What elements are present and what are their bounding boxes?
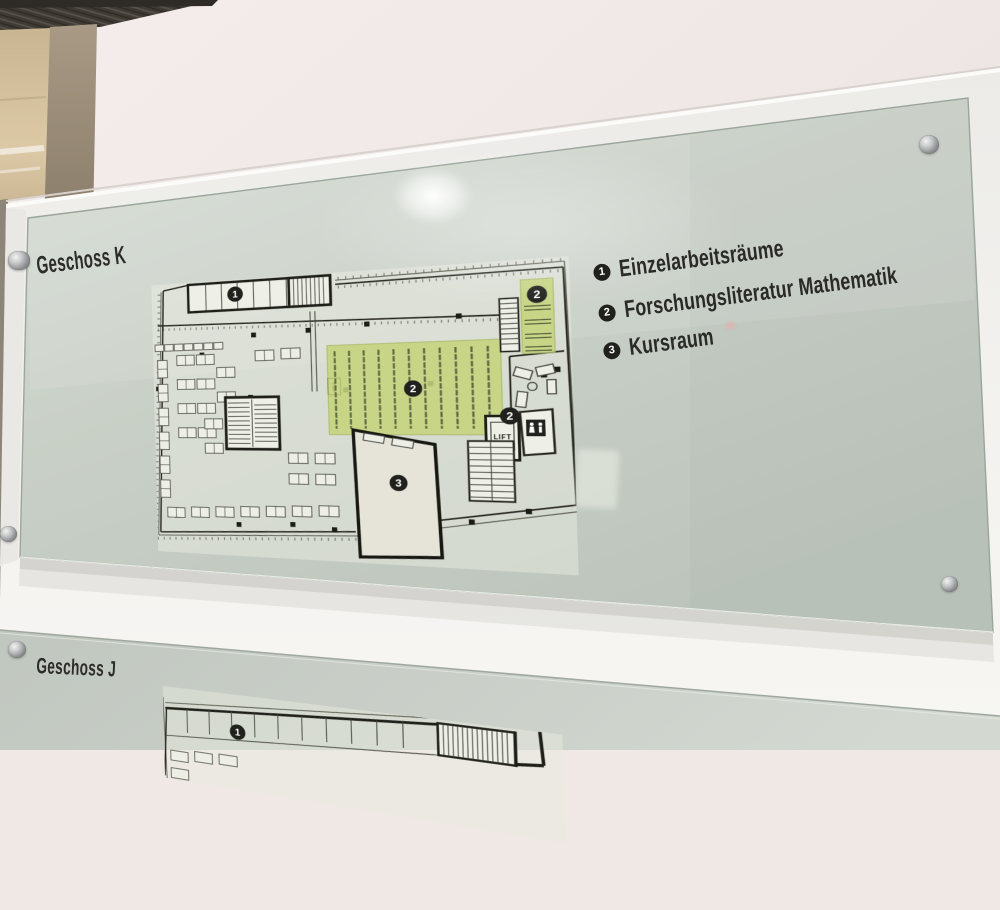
legend-badge-2: 2 [598, 303, 617, 322]
standoff-screw-icon [919, 135, 939, 154]
course-room [353, 430, 442, 562]
standoff-screw-icon [8, 251, 30, 270]
wc-room [520, 409, 555, 455]
legend-label-3: Kursraum [628, 325, 715, 359]
floor-title-j: Geschoss J [36, 653, 166, 685]
badge-1-label: 1 [235, 727, 241, 738]
badge-2-label: 2 [410, 383, 417, 394]
stairs-side [499, 298, 519, 352]
standoff-screw-icon [8, 641, 26, 658]
wc-icon [526, 420, 546, 437]
badge-1-label: 1 [232, 289, 238, 300]
wall-photo-scene: LIFT 1 2 2 [0, 0, 1000, 750]
badge-2b-label: 2 [533, 289, 541, 301]
legend-item-3: 3 Kursraum [602, 322, 745, 363]
perspective-layer: LIFT 1 2 2 [0, 0, 964, 910]
faint-reflection [575, 449, 620, 509]
floor-plan-j: 1 [163, 686, 566, 844]
legend-badge-3: 3 [602, 341, 621, 360]
badge-2c-label: 2 [506, 410, 514, 422]
floor-plan-k: LIFT 1 2 2 [151, 256, 578, 575]
floor-title-j-text: Geschoss J [36, 653, 117, 682]
stairs-top [288, 275, 330, 307]
stairs-lower [468, 441, 515, 502]
standoff-screw-icon [941, 576, 958, 592]
single-rooms-block [188, 275, 331, 312]
legend-badge-1: 1 [592, 262, 611, 281]
badge-3-label: 3 [395, 478, 402, 489]
standoff-screw-icon [0, 526, 17, 542]
stairs-central [225, 397, 280, 450]
